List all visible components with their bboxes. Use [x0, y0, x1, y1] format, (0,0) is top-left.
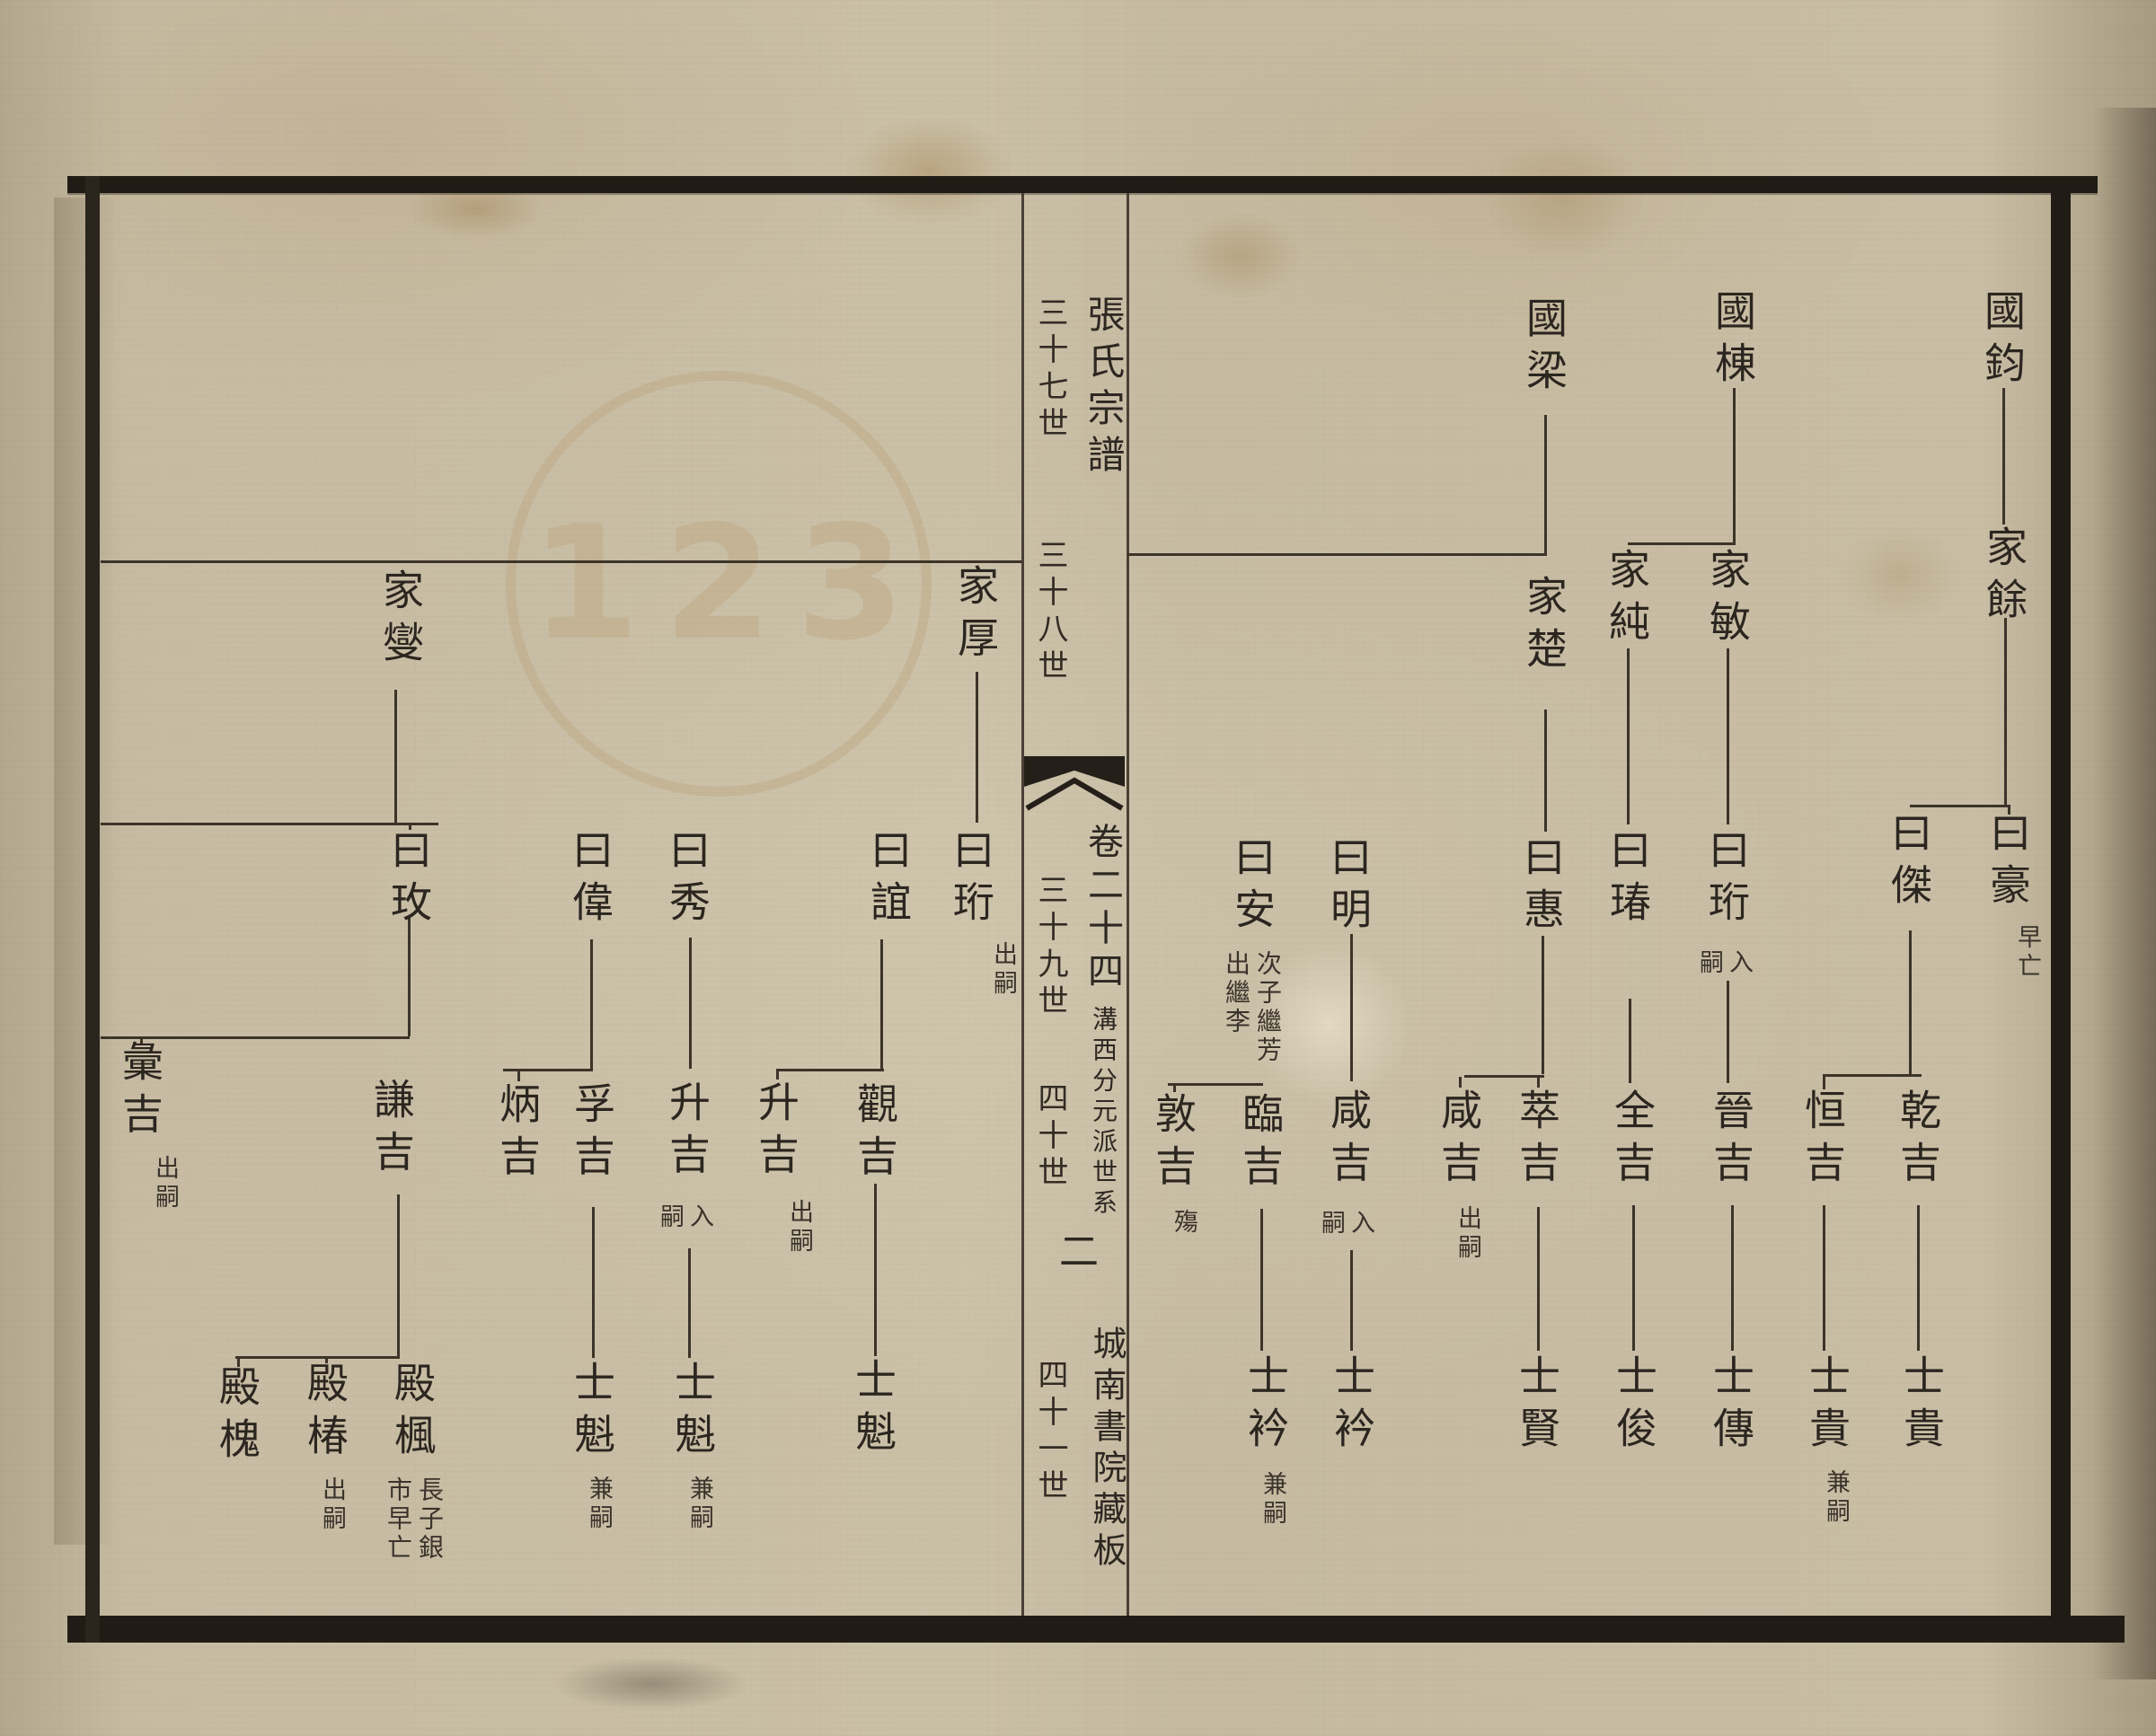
person-name: 士魁: [671, 1361, 712, 1465]
frame-border-right: [2051, 176, 2071, 1643]
person-annotation: 兼嗣: [582, 1476, 617, 1533]
person-name: 孚吉: [570, 1082, 612, 1186]
descent-line: [1917, 1205, 1920, 1351]
sibling-connector-line: [1464, 1075, 1544, 1078]
page-number: 二: [1055, 1230, 1094, 1270]
person-name: 殿槐: [216, 1365, 257, 1469]
person-name: 士魁: [570, 1361, 612, 1465]
sibling-connector-line: [101, 823, 438, 825]
person-name: 士衿: [1330, 1354, 1372, 1458]
sibling-connector-line: [1910, 805, 2010, 807]
descent-line: [688, 1248, 691, 1358]
person-name: 晉吉: [1710, 1088, 1751, 1193]
descent-line: [397, 1194, 400, 1356]
person-name: 曰惠: [1520, 835, 1561, 939]
person-name: 乾吉: [1896, 1088, 1938, 1193]
person-annotation: 長子銀市早亡: [384, 1476, 441, 1563]
descent-line: [1537, 1077, 1540, 1088]
person-name: 恒吉: [1801, 1088, 1842, 1193]
descent-line: [1727, 981, 1729, 1083]
descent-line: [1350, 934, 1353, 1081]
person-annotation: 入嗣: [1700, 943, 1754, 978]
descent-line: [1537, 1207, 1540, 1351]
sibling-connector-line: [101, 1036, 410, 1039]
descent-line: [1542, 936, 1544, 1074]
paper-stain: [1815, 503, 1985, 647]
annotation-char: 嗣: [1700, 943, 1724, 978]
person-name: 臨吉: [1239, 1092, 1280, 1196]
person-name: 曰豪: [1986, 811, 2028, 915]
fishtail-mark: [1024, 756, 1125, 819]
annotation-char: 入: [1351, 1203, 1375, 1238]
digitization-watermark: 123: [506, 371, 932, 797]
person-name: 家純: [1605, 548, 1647, 652]
descent-line: [1733, 388, 1736, 544]
person-name: 士俊: [1613, 1354, 1654, 1458]
annotation-char: 嗣: [660, 1197, 685, 1232]
person-annotation: 兼嗣: [683, 1476, 718, 1533]
person-name: 曰秀: [666, 828, 707, 932]
book-title: 張氏宗譜: [1083, 295, 1121, 481]
descent-line: [1632, 1205, 1635, 1351]
descent-line: [976, 672, 978, 823]
annotation-char: 入: [690, 1197, 714, 1232]
person-name: 殿椿: [304, 1361, 345, 1466]
person-annotation: 出嗣: [1451, 1205, 1486, 1263]
person-name: 曰誼: [867, 828, 908, 932]
descent-line: [1260, 1209, 1263, 1351]
generation-label: 四十一世: [1034, 1359, 1065, 1506]
person-name: 升吉: [666, 1080, 707, 1185]
person-annotation: 入嗣: [1321, 1203, 1375, 1238]
person-annotation: 早亡: [2010, 924, 2046, 982]
descent-line: [776, 1071, 779, 1079]
person-annotation: 次子繼芳出繼李: [1223, 950, 1279, 1065]
person-name: 全吉: [1611, 1088, 1652, 1193]
person-name: 曰玫: [387, 828, 429, 932]
person-name: 國棟: [1711, 289, 1753, 393]
person-name: 家厚: [954, 564, 995, 668]
descent-line: [394, 690, 397, 823]
descent-line: [517, 1071, 520, 1081]
descent-line: [408, 916, 411, 1036]
volume-label: 卷二十四: [1084, 823, 1120, 995]
person-name: 曰珩: [950, 828, 991, 932]
person-name: 士賢: [1515, 1354, 1557, 1458]
annotation-column: 市早亡: [384, 1476, 410, 1563]
paper-stain: [1150, 193, 1330, 319]
descent-line: [689, 938, 692, 1069]
person-name: 咸吉: [1327, 1088, 1368, 1193]
person-name: 曰瑃: [1606, 828, 1648, 932]
frame-border-left: [85, 176, 100, 1643]
person-annotation: 出嗣: [986, 941, 1021, 999]
generation-label: 三十七世: [1034, 296, 1065, 444]
descent-line: [1544, 415, 1547, 555]
descent-line: [1173, 1085, 1176, 1092]
person-name: 家敏: [1706, 548, 1747, 652]
person-name: 萃吉: [1515, 1088, 1557, 1193]
person-annotation: 兼嗣: [1256, 1471, 1291, 1529]
person-name: 士魁: [852, 1358, 893, 1462]
person-name: 家楚: [1523, 575, 1564, 679]
person-name: 曰安: [1231, 835, 1272, 939]
person-name: 升吉: [755, 1080, 796, 1185]
spine-rule-left: [1021, 193, 1024, 1616]
person-name: 曰偉: [569, 828, 610, 932]
person-name: 敦吉: [1152, 1092, 1193, 1196]
descent-line: [1727, 648, 1729, 824]
person-name: 國梁: [1523, 296, 1564, 401]
person-name: 咸吉: [1437, 1088, 1479, 1193]
sibling-connector-line: [776, 1069, 884, 1071]
person-annotation: 入嗣: [660, 1197, 714, 1232]
descent-line: [1823, 1077, 1825, 1089]
person-name: 曰傑: [1887, 811, 1929, 915]
person-annotation: 殤: [1167, 1209, 1202, 1238]
descent-line: [2004, 618, 2007, 805]
descent-line: [1823, 1205, 1825, 1351]
descent-line: [1909, 930, 1912, 1074]
person-annotation: 出嗣: [315, 1476, 350, 1534]
person-name: 家餘: [1983, 525, 2024, 630]
generation-label: 四十世: [1034, 1082, 1065, 1193]
genealogy-page-scan: 123 張氏宗譜 卷二十四 溝西分元派世系 二 城南書院藏板 三十七世三十八世三…: [0, 0, 2156, 1736]
publisher-label: 城南書院藏板: [1089, 1326, 1123, 1573]
spine-rule-right: [1127, 193, 1129, 1616]
paper-stain: [813, 94, 1047, 247]
person-name: 家燮: [379, 568, 420, 673]
person-name: 曰珩: [1705, 828, 1746, 932]
paper-stain: [521, 1648, 782, 1720]
frame-border-bottom: [67, 1616, 2125, 1643]
person-name: 國鈞: [1981, 289, 2022, 393]
descent-line: [1459, 1077, 1462, 1088]
generation-label: 三十八世: [1034, 539, 1065, 686]
sibling-connector-line: [235, 1356, 400, 1359]
sibling-connector-line: [1127, 553, 1547, 556]
descent-line: [880, 939, 883, 1069]
descent-line: [1627, 648, 1630, 824]
frame-border-top: [67, 176, 2098, 193]
paper-stain: [1446, 108, 1680, 287]
sibling-connector-line: [101, 560, 1022, 563]
watermark-digits: 123: [530, 493, 928, 675]
sibling-connector-line: [1628, 542, 1736, 545]
descent-line: [1731, 1205, 1734, 1351]
descent-line: [874, 1184, 877, 1356]
descent-line: [592, 1207, 595, 1358]
person-name: 士貴: [1900, 1354, 1941, 1458]
descent-line: [1350, 1250, 1353, 1351]
sibling-connector-line: [1168, 1083, 1263, 1086]
person-name: 士傳: [1710, 1354, 1751, 1458]
person-annotation: 出嗣: [782, 1199, 817, 1256]
person-name: 彙吉: [119, 1040, 160, 1144]
annotation-char: 嗣: [1321, 1203, 1346, 1238]
person-name: 士衿: [1244, 1354, 1286, 1458]
generation-label: 三十九世: [1034, 874, 1065, 1021]
sibling-connector-line: [503, 1069, 593, 1071]
person-name: 觀吉: [853, 1082, 895, 1186]
descent-line: [1629, 999, 1631, 1083]
person-name: 殿楓: [391, 1361, 432, 1466]
person-name: 炳吉: [496, 1082, 537, 1186]
scan-edge-shadow-right: [2093, 108, 2156, 1679]
person-name: 士貴: [1806, 1354, 1847, 1458]
annotation-column: 長子銀: [416, 1476, 441, 1563]
person-annotation: 兼嗣: [1819, 1469, 1854, 1527]
annotation-column: 出繼李: [1223, 950, 1248, 1065]
annotation-column: 次子繼芳: [1254, 950, 1279, 1065]
descent-line: [590, 939, 593, 1069]
person-name: 曰明: [1327, 835, 1368, 939]
person-annotation: 出嗣: [148, 1155, 183, 1212]
annotation-char: 入: [1729, 943, 1754, 978]
descent-line: [2002, 388, 2005, 524]
descent-line: [1544, 709, 1547, 832]
section-label: 溝西分元派世系: [1090, 1006, 1115, 1220]
person-name: 謙吉: [370, 1078, 411, 1182]
sibling-connector-line: [1823, 1074, 1922, 1077]
